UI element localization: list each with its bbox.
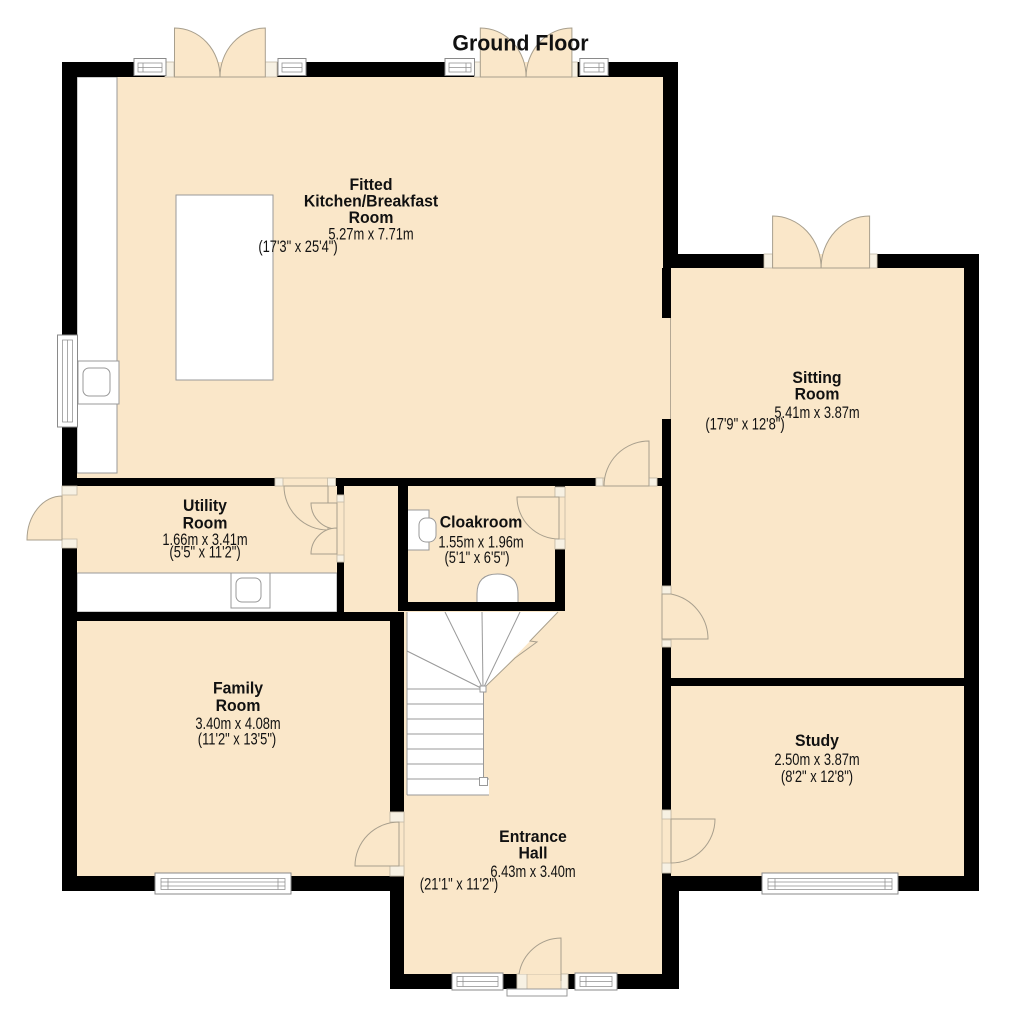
svg-text:Room: Room — [795, 385, 840, 404]
svg-text:(11'2" x 13'5"): (11'2" x 13'5") — [198, 730, 276, 749]
svg-text:Family: Family — [213, 679, 264, 698]
svg-text:5.27m x 7.71m: 5.27m x 7.71m — [328, 225, 413, 244]
svg-text:(17'9" x 12'8"): (17'9" x 12'8") — [705, 415, 784, 434]
svg-text:(8'2" x 12'8"): (8'2" x 12'8") — [781, 767, 853, 786]
svg-text:(5'5" x 11'2"): (5'5" x 11'2") — [169, 543, 240, 562]
svg-text:5.41m x 3.87m: 5.41m x 3.87m — [774, 403, 859, 422]
svg-text:Hall: Hall — [519, 844, 548, 863]
svg-text:Cloakroom: Cloakroom — [440, 513, 523, 532]
svg-text:(21'1" x 11'2"): (21'1" x 11'2") — [420, 875, 498, 894]
svg-text:Room: Room — [216, 697, 261, 716]
svg-text:Utility: Utility — [183, 497, 228, 516]
svg-text:(5'1" x 6'5"): (5'1" x 6'5") — [444, 548, 509, 567]
svg-text:Study: Study — [795, 731, 840, 750]
svg-text:Ground Floor: Ground Floor — [452, 30, 589, 55]
svg-text:6.43m x 3.40m: 6.43m x 3.40m — [490, 862, 575, 881]
svg-text:(17'3" x 25'4"): (17'3" x 25'4") — [258, 237, 337, 256]
